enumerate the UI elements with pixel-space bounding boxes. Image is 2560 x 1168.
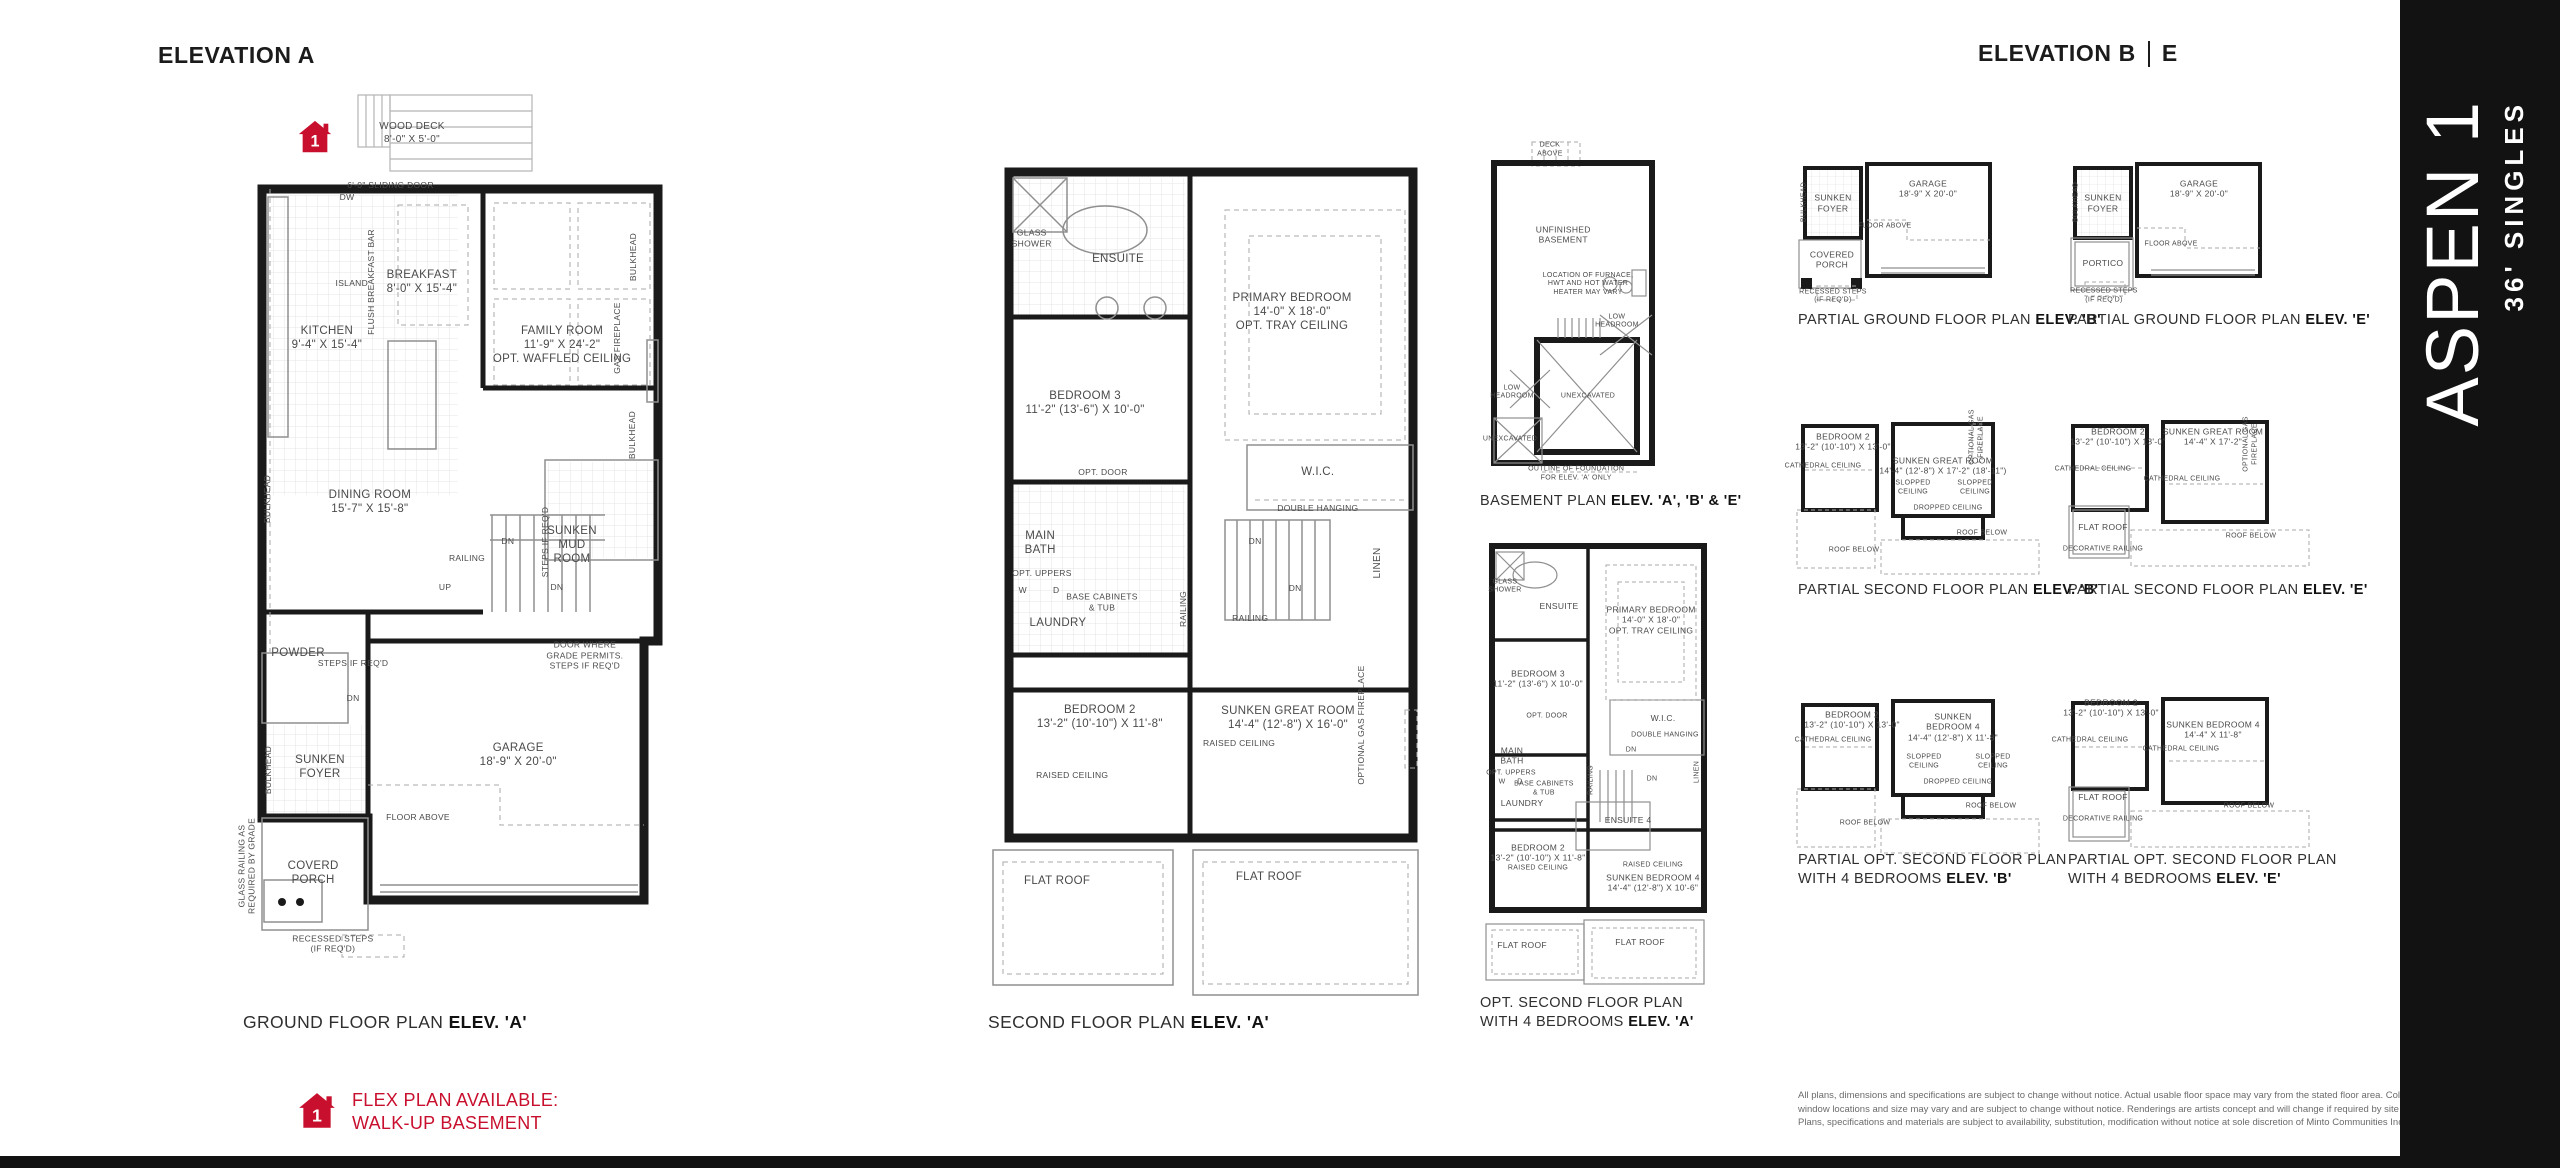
plan-label: BULKHEAD [627,411,637,459]
caption-text: PARTIAL GROUND FLOOR PLAN [1798,312,2035,328]
caption-elev: ELEV. 'A' [1628,1014,1694,1030]
elevation-a-header: ELEVATION A [158,42,315,69]
caption-line1: OPT. SECOND FLOOR PLAN [1480,994,1694,1013]
plan-label: FLAT ROOF [1236,870,1302,884]
plan-label: FLAT ROOF [1024,874,1090,888]
svg-text:1: 1 [312,1106,322,1126]
plan-label: MAIN BATH [1500,746,1523,767]
plan-label: RECESSED STEPS (IF REQ'D) [1799,288,1867,305]
plan-label: RAILING [1232,613,1268,623]
plan-label: DECORATIVE RAILING [2063,546,2143,555]
plan-label: SLOPPED CEILING [1895,479,1930,496]
plan-label: FLAT ROOF [1497,940,1547,950]
plan-label: GLASS SHOWER [1012,228,1052,249]
plan-label: ENSUITE 4 [1605,815,1652,825]
plan-label: RAILING [449,553,485,563]
plan-label: SUNKEN MUD ROOM [547,524,597,566]
plan-label: W [1019,585,1027,595]
plan-label: BULKHEAD [2073,182,2082,222]
plan-label: RAISED CEILING [1036,770,1108,780]
plan-label: DW [340,192,355,202]
plan-label: ROOF BELOW [1966,803,2016,812]
plan-label: ISLAND [336,278,369,288]
model-series: 36' SINGLES [2499,100,2530,440]
ground-floor-caption: GROUND FLOOR PLAN ELEV. 'A' [243,1011,527,1033]
plan-label: BEDROOM 2 13'-2" (10'-10") X 13'-0" [1795,432,1891,453]
plan-label: W [1499,779,1506,788]
plan-label: PRIMARY BEDROOM 14'-0" X 18'-0" OPT. TRA… [1606,605,1695,636]
legal-line3: Plans, specifications and materials are … [1798,1116,2499,1130]
plan-label: ROOF BELOW [1840,820,1890,829]
plan-label: LAUNDRY [1030,616,1087,630]
plan-label: LINEN [1694,761,1703,783]
plan-label: BASE CABINETS & TUB [1514,781,1574,798]
plan-label: UNFINISHED BASEMENT [1536,225,1591,246]
plan-label: SUNKEN BEDROOM 4 14'-4" X 11'-8" [2166,720,2260,741]
plan-label: LOCATION OF FURNACE, HWT AND HOT WATER H… [1543,272,1634,298]
plan-label: LAUNDRY [1501,798,1544,808]
caption-elev: ELEV. 'A' [449,1012,527,1032]
plan-label: RAILING [1178,591,1188,627]
plan-label: GLASS RAILING AS REQUIRED BY GRADE [237,818,258,914]
caption-line1: PARTIAL OPT. SECOND FLOOR PLAN [1798,851,2067,870]
plan-label: SUNKEN FOYER [295,753,345,781]
plan-label: ROOF BELOW [2224,803,2274,812]
plan-label: LOW HEADROOM [1490,384,1534,401]
basement-plan: DECK ABOVEUNFINISHED BASEMENTLOCATION OF… [1480,140,1665,505]
plan-label: ROOF BELOW [2226,533,2276,542]
plan-label: ENSUITE [1539,601,1578,611]
plan-label: DOUBLE HANGING [1277,503,1358,513]
partial-second-e-caption: PARTIAL SECOND FLOOR PLAN ELEV. 'E' [2068,581,2368,600]
plan-label: FLOOR ABOVE [2145,241,2198,250]
plan-label: OPT. UPPERS [1012,568,1072,578]
plan-label: PRIMARY BEDROOM 14'-0" X 18'-0" OPT. TRA… [1232,290,1351,332]
side-banner: ASPEN 1 36' SINGLES [2400,0,2560,1168]
banner-rotated-text: ASPEN 1 36' SINGLES [2415,100,2545,440]
plan-label: CATHEDRAL CEILING [2144,476,2221,485]
plan-label: RAISED CEILING [1623,862,1683,871]
partial-second-plan-b: BEDROOM 2 13'-2" (10'-10") X 13'-0"CATHE… [1795,420,2045,590]
plan-label: DECORATIVE RAILING [2063,816,2143,825]
plan-label: OPT. DOOR [1078,467,1127,477]
opt-second-floor-plan: GLASS SHOWERENSUITEPRIMARY BEDROOM 14'-0… [1480,540,1715,990]
plan-label: BEDROOM 2 13'-2" (10'-10") X 13'-0" [2063,698,2159,719]
caption-text: WITH 4 BEDROOMS [1480,1014,1628,1030]
plan-label: DN [1647,776,1658,785]
partial-ground-b-caption: PARTIAL GROUND FLOOR PLAN ELEV. 'B' [1798,311,2101,330]
caption-text: PARTIAL GROUND FLOOR PLAN [2068,312,2305,328]
plan-label: FLAT ROOF [2078,522,2128,532]
plan-label: DN [1249,536,1262,546]
plan-label: SLOPPED CEILING [1906,753,1941,770]
opt-second-floor-caption: OPT. SECOND FLOOR PLAN WITH 4 BEDROOMS E… [1480,994,1694,1032]
caption-line2: WITH 4 BEDROOMS ELEV. 'E' [2068,870,2337,889]
caption-elev: ELEV. 'E' [2216,871,2281,887]
plan-label: DN [550,581,563,591]
caption-text: GROUND FLOOR PLAN [243,1012,449,1032]
plan-label: SUNKEN GREAT ROOM 14'-4" (12'-8") X 16'-… [1221,704,1355,732]
plan-label: GAS FIREPLACE [612,303,622,374]
flex-note-line1: FLEX PLAN AVAILABLE: [352,1089,558,1112]
caption-elev: ELEV. 'B' [1946,871,2012,887]
plan-label: PORTICO [2083,258,2124,268]
plan-label: 6'-0" SLIDING DOOR [347,180,434,190]
plan-label: LOW HEADROOM [1595,313,1639,330]
ground-floor-walls-drawing [240,85,670,965]
plan-label: UNEXCAVATED [1483,436,1537,445]
plan-label: CATHEDRAL CEILING [1795,737,1872,746]
caption-text: WITH 4 BEDROOMS [2068,871,2216,887]
caption-elev: ELEV. 'A', 'B' & 'E' [1611,493,1742,509]
caption-text: BASEMENT PLAN [1480,493,1611,509]
plan-label: BULKHEAD [1801,182,1810,222]
bottom-border-strip [0,1156,2560,1168]
house-icon: 1 [296,1090,338,1132]
plan-label: BEDROOM 2 13'-2" (10'-10") X 11'-8" [1037,703,1163,731]
plan-label: RECESSED STEPS (IF REQ'D) [2070,287,2138,304]
elevation-e-label: E [2162,40,2178,67]
elevation-b-e-divider [2148,41,2150,67]
elevation-b-label: ELEVATION B [1978,40,2136,67]
plan-label: SUNKEN BEDROOM 4 14'-4" (12'-8") X 11'-8… [1908,711,1998,742]
plan-label: RAILING [1588,765,1597,795]
plan-label: OPT. DOOR [1526,713,1567,722]
plan-label: BEDROOM 3 11'-2" (13'-6") X 10'-0" [1493,669,1583,690]
plan-label: OPTIONAL GAS FIREPLACE [1356,665,1366,784]
legal-disclaimer: All plans, dimensions and specifications… [1798,1089,2499,1130]
plan-label: GARAGE 18'-9" X 20'-0" [2170,179,2228,200]
plan-label: OPT. UPPERS [1486,770,1536,779]
plan-label: ROOF BELOW [1829,547,1879,556]
model-name: ASPEN 1 [2415,100,2491,440]
plan-label: SUNKEN GREAT ROOM 14'-4" (12'-8") X 17'-… [1879,456,2006,477]
plan-label: DROPPED CEILING [1913,505,1982,514]
caption-text: PARTIAL SECOND FLOOR PLAN [2068,582,2303,598]
plan-label: SLOPPED CEILING [1975,753,2010,770]
plan-label: BEDROOM 3 11'-2" (13'-6") X 10'-0" [1026,389,1145,417]
plan-label: FLOOR ABOVE [386,812,450,822]
plan-label: POWDER [271,646,325,660]
second-floor-caption: SECOND FLOOR PLAN ELEV. 'A' [988,1011,1269,1033]
plan-label: SUNKEN FOYER [2084,193,2121,214]
plan-label: UP [439,581,451,591]
plan-label: OPTIONAL GAS FIREPLACE [2242,416,2259,471]
plan-label: RAISED CEILING [1203,738,1275,748]
plan-label: GARAGE 18'-9" X 20'-0" [480,741,557,769]
partial-second-b-caption: PARTIAL SECOND FLOOR PLAN ELEV. 'B' [1798,581,2099,600]
caption-line1: PARTIAL OPT. SECOND FLOOR PLAN [2068,851,2337,870]
plan-label: SLOPPED CEILING [1957,479,1992,496]
caption-elev: ELEV. 'E' [2303,582,2368,598]
plan-label: RECESSED STEPS (IF REQ'D) [292,934,373,955]
caption-text: WITH 4 BEDROOMS [1798,871,1946,887]
plan-label: DN [347,693,360,703]
caption-elev: ELEV. 'E' [2305,312,2370,328]
plan-label: BULKHEAD [628,232,638,280]
partial-ground-plan-e: SUNKEN FOYERGARAGE 18'-9" X 20'-0"FLOOR … [2065,160,2310,320]
plan-label: BULKHEAD [263,746,273,794]
plan-label: BASE CABINETS & TUB [1066,592,1137,613]
floor-plan-sheet: ELEVATION A ELEVATION B E 1 [0,0,2560,1168]
plan-label: D [1053,585,1059,595]
plan-label: GARAGE 18'-9" X 20'-0" [1899,179,1957,200]
ground-floor-plan: WOOD DECK 8'-0" X 5'-0"6'-0" SLIDING DOO… [240,85,670,965]
plan-label: FLUSH BREAKFAST BAR [366,229,376,335]
flex-note-line2: WALK-UP BASEMENT [352,1112,558,1135]
plan-label: FLOOR ABOVE [1858,223,1911,232]
plan-label: UNEXCAVATED [1561,393,1615,402]
plan-label: SUNKEN FOYER [1814,193,1851,214]
caption-text: SECOND FLOOR PLAN [988,1012,1191,1032]
plan-label: BEDROOM 2 13'-2" (10'-10") X 13'-0" [1804,710,1900,731]
plan-label: DN [501,536,514,546]
flex-plan-note: FLEX PLAN AVAILABLE: WALK-UP BASEMENT [352,1089,558,1135]
caption-elev: ELEV. 'A' [1191,1012,1269,1032]
plan-label: COVERD PORCH [288,859,339,887]
flex-plan-note-badge: 1 [296,1090,338,1132]
plan-label: FLAT ROOF [2078,792,2128,802]
plan-label: MAIN BATH [1025,529,1056,557]
plan-label: RAISED CEILING [1508,865,1568,874]
plan-label: CATHEDRAL CEILING [2055,466,2132,475]
partial-second-plan-e: BEDROOM 2 13'-2" (10'-10") X 13'-0"SUNKE… [2065,420,2315,590]
partial-ground-plan-b: SUNKEN FOYERGARAGE 18'-9" X 20'-0"FLOOR … [1795,160,2040,320]
second-floor-plan: GLASS SHOWERENSUITEPRIMARY BEDROOM 14'-0… [985,150,1430,1000]
plan-label: W.I.C. [1301,465,1334,479]
partial-opt-b-caption: PARTIAL OPT. SECOND FLOOR PLAN WITH 4 BE… [1798,851,2067,889]
plan-label: WOOD DECK 8'-0" X 5'-0" [379,121,444,145]
caption-text: PARTIAL SECOND FLOOR PLAN [1798,582,2033,598]
plan-label: FAMILY ROOM 11'-9" X 24'-2" OPT. WAFFLED… [493,324,631,366]
plan-label: LINEN [1372,548,1384,579]
plan-label: BREAKFAST 8'-0" X 15'-4" [387,268,457,296]
plan-label: BEDROOM 2 13'-2" (10'-10") X 11'-8" [1491,842,1586,863]
basement-caption: BASEMENT PLAN ELEV. 'A', 'B' & 'E' [1480,492,1742,511]
plan-label: BULKHEAD [262,474,272,522]
plan-label: OPTIONAL GAS FIREPLACE [1968,409,1985,464]
plan-label: CATHEDRAL CEILING [2143,746,2220,755]
partial-ground-e-caption: PARTIAL GROUND FLOOR PLAN ELEV. 'E' [2068,311,2370,330]
plan-label: DN [1289,583,1302,593]
plan-label: COVERED PORCH [1810,250,1854,271]
plan-label: ROOF BELOW [1957,530,2007,539]
legal-line2: window locations and size may vary and a… [1798,1103,2499,1117]
legal-line1: All plans, dimensions and specifications… [1798,1089,2499,1103]
plan-label: BEDROOM 2 13'-2" (10'-10") X 13'-0" [2070,427,2166,448]
plan-label: DOUBLE HANGING [1631,732,1699,741]
plan-label: KITCHEN 9'-4" X 15'-4" [292,324,362,352]
plan-label: CATHEDRAL CEILING [2052,737,2129,746]
plan-label: STEPS IF REQ'D [318,658,389,668]
plan-label: DECK ABOVE [1537,142,1563,159]
plan-label: CATHEDRAL CEILING [1785,463,1862,472]
plan-label: FLAT ROOF [1615,937,1665,947]
plan-label: W.I.C. [1651,713,1676,723]
plan-label: GLASS SHOWER [1488,578,1521,595]
elevation-b-e-header: ELEVATION B E [1978,40,2178,67]
caption-line2: WITH 4 BEDROOMS ELEV. 'B' [1798,870,2067,889]
plan-label: DN [1626,747,1637,756]
partial-opt-e-caption: PARTIAL OPT. SECOND FLOOR PLAN WITH 4 BE… [2068,851,2337,889]
caption-line2: WITH 4 BEDROOMS ELEV. 'A' [1480,1013,1694,1032]
plan-label: ENSUITE [1092,252,1144,266]
plan-label: OUTLINE OF FOUNDATION FOR ELEV. 'A' ONLY [1528,465,1624,482]
plan-label: DROPPED CEILING [1923,779,1992,788]
plan-label: DINING ROOM 15'-7" X 15'-8" [329,488,412,516]
plan-label: DOOR WHERE GRADE PERMITS. STEPS IF REQ'D [546,640,623,671]
plan-label: SUNKEN BEDROOM 4 14'-4" (12'-8") X 10'-6… [1606,873,1700,894]
